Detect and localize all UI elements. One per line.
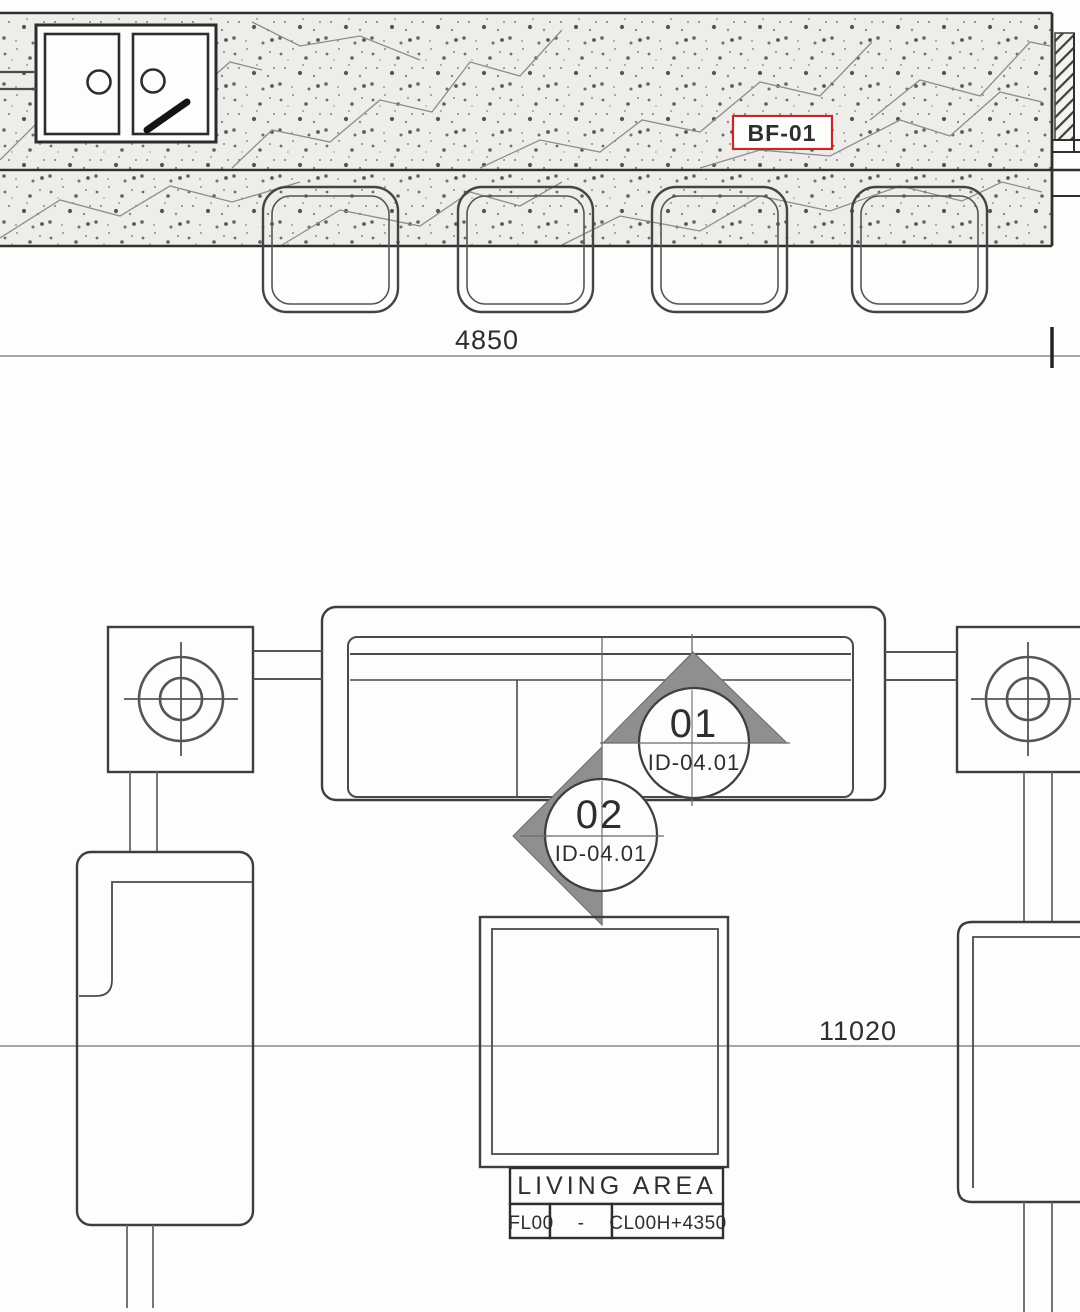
finish-tag-label: BF-01	[748, 120, 817, 146]
sofa-outline	[322, 607, 885, 800]
floor-plan-sheet: BF-01	[0, 0, 1080, 1312]
armchair-left	[77, 852, 253, 1308]
room-ceiling-level: CL00H+4350	[609, 1213, 727, 1234]
armchair-left-legs	[127, 1225, 153, 1308]
coffee-table-inner	[492, 929, 718, 1154]
counter-overhang-band	[0, 172, 1052, 246]
sofa-table-connectors	[253, 651, 957, 680]
armchair-right	[958, 922, 1080, 1312]
side-table-right-legs	[1024, 772, 1052, 922]
sink-bowl-right	[133, 34, 208, 134]
room-label: LIVING AREA FL00 - CL00H+4350	[508, 1168, 726, 1238]
side-table-right	[957, 627, 1080, 922]
room-name: LIVING AREA	[517, 1172, 717, 1200]
sofa	[253, 607, 957, 800]
table-lamp-right-icon	[971, 642, 1080, 756]
elevation-marker-01: 01 ID-04.01	[600, 634, 790, 806]
kitchen-counter: BF-01	[0, 13, 1080, 312]
side-table-left-legs	[130, 772, 157, 852]
dimension-4850: 4850	[0, 325, 1080, 368]
double-sink	[36, 25, 216, 142]
side-table-left	[108, 627, 253, 852]
wall-hatch	[1055, 33, 1074, 140]
wall-section	[1052, 13, 1080, 246]
room-label-separator: -	[578, 1213, 585, 1234]
armchair-right-backrest	[973, 937, 1080, 1188]
marker-02-sheet: ID-04.01	[555, 841, 647, 866]
armchair-left-outline	[77, 852, 253, 1225]
finish-tag-bf01: BF-01	[733, 116, 832, 149]
table-lamp-left-icon	[124, 642, 238, 756]
marker-01-number: 01	[670, 702, 719, 746]
coffee-table-outline	[480, 917, 728, 1167]
armchair-left-backrest	[79, 882, 253, 996]
sink-bowl-left	[45, 34, 119, 134]
dimension-4850-value: 4850	[455, 325, 519, 355]
coffee-table	[480, 917, 728, 1167]
armchair-right-outline	[958, 922, 1080, 1202]
armchair-right-legs	[1024, 1202, 1052, 1312]
floor-plan-drawing: BF-01	[0, 0, 1080, 1312]
dimension-11020: 11020	[0, 1016, 1080, 1046]
dimension-11020-value: 11020	[819, 1016, 897, 1046]
elevation-marker-02: 02 ID-04.01	[513, 638, 664, 925]
room-floor-level: FL00	[508, 1213, 553, 1234]
marker-01-sheet: ID-04.01	[648, 750, 740, 775]
marker-02-number: 02	[576, 793, 625, 837]
